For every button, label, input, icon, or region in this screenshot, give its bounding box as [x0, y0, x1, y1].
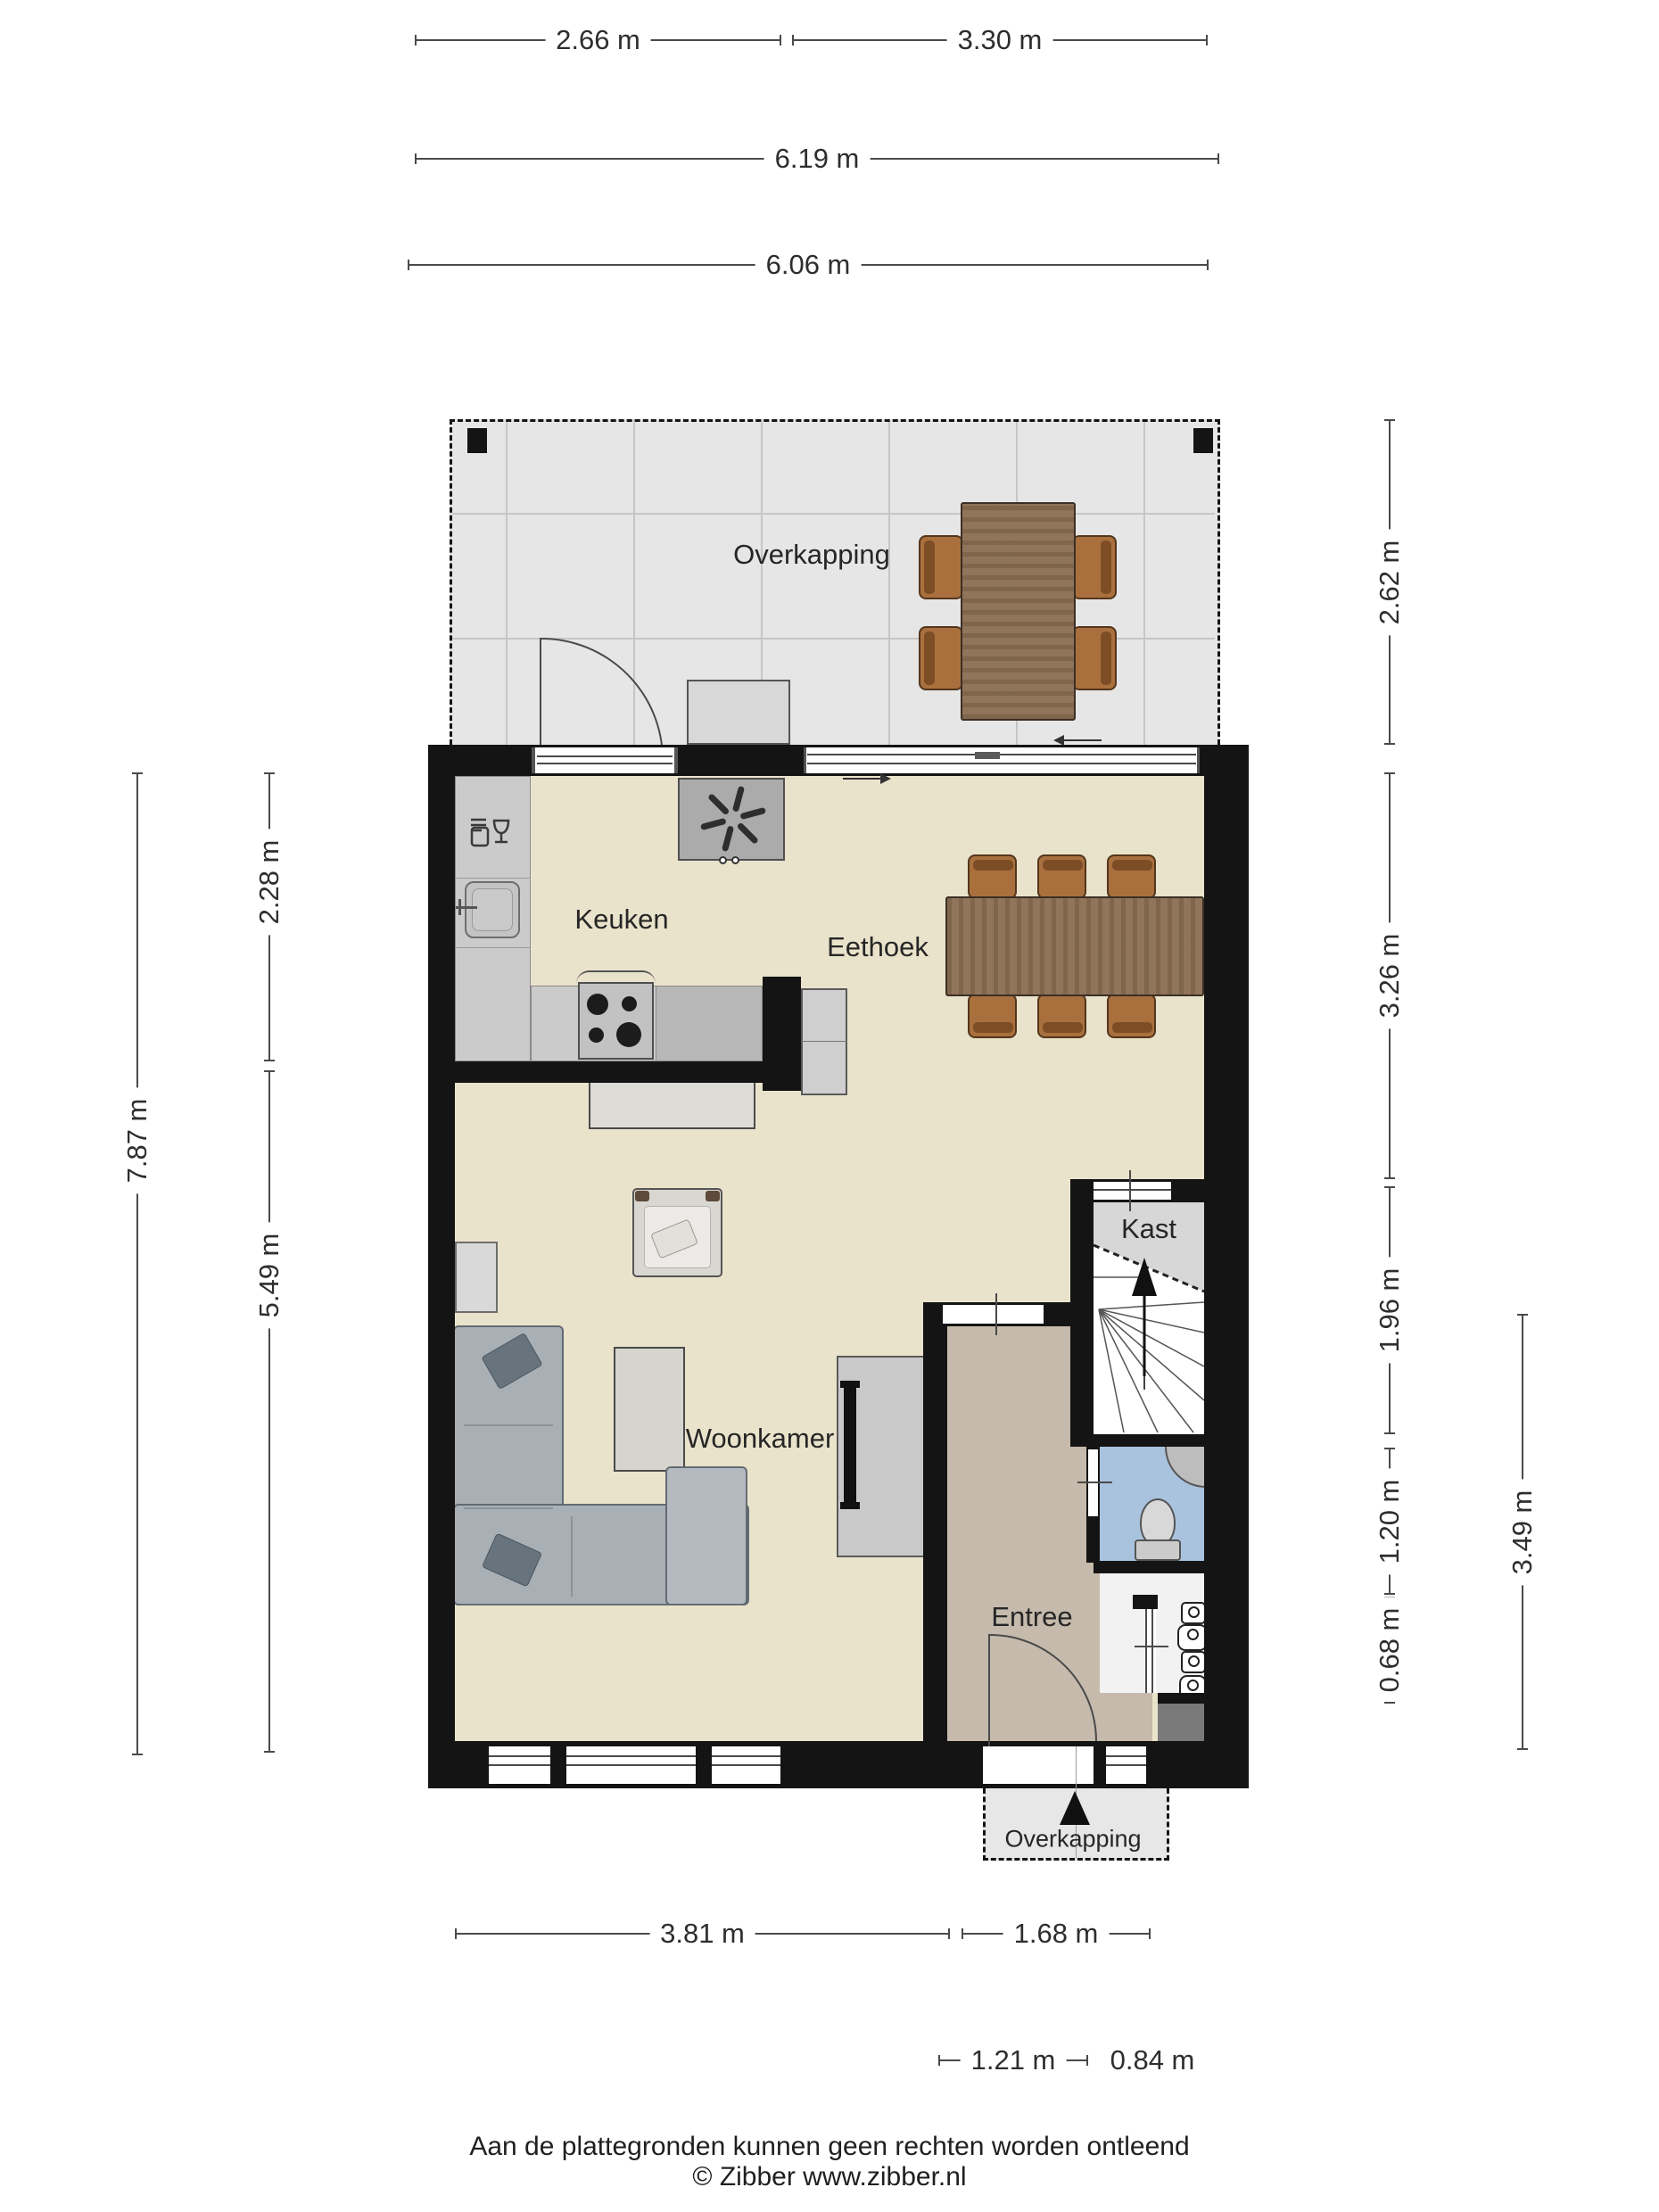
room-label-eethoek: Eethoek	[827, 931, 929, 963]
power-socket-icon	[1177, 1624, 1208, 1651]
dining-table	[945, 896, 1204, 996]
sliding-door-opening	[804, 747, 1200, 773]
terrace-table	[961, 502, 1076, 721]
terrace-step	[687, 680, 790, 745]
kast-door-opening	[1094, 1182, 1171, 1200]
stove-burner	[622, 996, 637, 1011]
wall-entree-left	[923, 1302, 947, 1744]
front-door-opening	[983, 1746, 1094, 1784]
kitchen-counter-dark-section	[656, 986, 763, 1061]
stove-burner	[616, 1022, 641, 1047]
dim-right-meterkast-depth: 0.68 m	[1389, 1597, 1391, 1704]
armchair-cap	[706, 1191, 720, 1201]
entree-door-opening	[943, 1305, 1044, 1324]
dim-right-entree-depth: 3.49 m	[1522, 1314, 1523, 1750]
dim-left-woonkamer-depth: 5.49 m	[268, 1070, 270, 1753]
dining-chair	[1107, 854, 1156, 899]
dim-left-house-depth: 7.87 m	[136, 772, 138, 1755]
dim-bottom-entree-width: 1.68 m	[962, 1933, 1151, 1935]
dining-chair	[1107, 994, 1156, 1038]
wall-kitchen-south	[428, 1061, 801, 1083]
sliding-door-arrow-icon	[843, 778, 886, 780]
sofa-cushion-line	[571, 1516, 573, 1597]
dishwasher-icon	[467, 813, 514, 858]
dining-chair	[968, 994, 1017, 1038]
kitchen-sink-inner	[472, 888, 513, 931]
wall-kast-left	[1070, 1179, 1094, 1447]
terrace-chair	[919, 626, 963, 690]
dim-bottom-porch-width: 1.21 m	[938, 2059, 1088, 2061]
kitchen-cabinet	[801, 988, 847, 1095]
power-socket-icon	[1181, 1651, 1206, 1673]
counter-divider	[455, 947, 531, 948]
dining-chair	[1037, 994, 1086, 1038]
wall-stairs-bottom	[1082, 1434, 1204, 1447]
stove	[578, 982, 654, 1060]
terrace-chair	[1072, 626, 1117, 690]
room-label-kast: Kast	[1121, 1213, 1176, 1245]
dim-top-house-width: 6.06 m	[408, 264, 1209, 266]
dim-top-overkapping-left: 2.66 m	[415, 39, 781, 41]
patio-grid-line	[452, 513, 1215, 515]
room-label-overkapping-bottom: Overkapping	[1004, 1826, 1141, 1853]
hood-light	[731, 856, 739, 864]
dim-top-overkapping-total: 6.19 m	[415, 158, 1219, 160]
dim-right-kast-depth: 1.96 m	[1389, 1186, 1391, 1434]
kitchen-door-opening	[532, 747, 678, 773]
extractor-fan-icon	[697, 783, 769, 854]
dining-chair	[968, 854, 1017, 899]
counter-divider	[455, 878, 531, 879]
dim-right-overkapping-depth: 2.62 m	[1389, 419, 1391, 745]
room-label-keuken: Keuken	[574, 904, 668, 936]
meter-block	[1158, 1702, 1204, 1741]
toilet-door-leaf	[1077, 1482, 1112, 1483]
patio-post-right	[1193, 428, 1213, 453]
wall-meter-bottom	[1158, 1693, 1204, 1704]
entrance-arrow-icon	[1060, 1791, 1090, 1825]
toilet-cistern	[1135, 1539, 1181, 1561]
tv-foot	[840, 1502, 860, 1509]
sliding-door-overlap	[975, 752, 1000, 759]
dim-top-overkapping-right: 3.30 m	[792, 39, 1208, 41]
wall-toilet-bottom	[1094, 1561, 1204, 1573]
power-socket-icon	[1181, 1602, 1206, 1624]
stove-burner	[589, 1028, 604, 1043]
terrace-chair	[919, 535, 963, 599]
stove-burner	[587, 994, 608, 1015]
dim-left-keuken-depth: 2.28 m	[268, 772, 270, 1061]
sofa-cushion-line	[464, 1507, 553, 1509]
dining-chair	[1037, 854, 1086, 899]
room-label-woonkamer: Woonkamer	[686, 1423, 835, 1455]
sofa-cushion-line	[464, 1424, 553, 1426]
coffee-table	[614, 1347, 685, 1472]
sofa-chaise	[665, 1466, 747, 1605]
cabinet-divider	[801, 1041, 847, 1042]
tv-icon	[844, 1381, 856, 1509]
dim-bottom-porch-side: 0.84 m	[1110, 2044, 1195, 2076]
wall-kitchen-pillar	[763, 977, 801, 1091]
patio-post-left	[467, 428, 487, 453]
terrace-chair	[1072, 535, 1117, 599]
room-label-entree: Entree	[991, 1601, 1072, 1633]
tv-foot	[840, 1381, 860, 1388]
dim-bottom-woonkamer-width: 3.81 m	[455, 1933, 950, 1935]
faucet-handle	[458, 899, 461, 915]
wall-meter-stub	[1133, 1595, 1158, 1609]
armchair-cap	[635, 1191, 649, 1201]
hood-light	[719, 856, 727, 864]
radiator	[455, 1242, 498, 1313]
dim-right-eethoek-depth: 3.26 m	[1389, 772, 1391, 1179]
sliding-door-arrow-icon	[1059, 739, 1102, 741]
floorplan-page: { "document": { "type": "floor-plan", "p…	[0, 0, 1659, 2212]
room-label-overkapping-top: Overkapping	[733, 539, 890, 571]
footer-disclaimer: Aan de plattegronden kunnen geen rechten…	[0, 2132, 1659, 2162]
wall-left	[428, 745, 455, 1788]
dim-right-toilet-depth: 1.20 m	[1389, 1448, 1391, 1595]
wall-right	[1204, 745, 1249, 1788]
footer-copyright: © Zibber www.zibber.nl	[0, 2162, 1659, 2192]
